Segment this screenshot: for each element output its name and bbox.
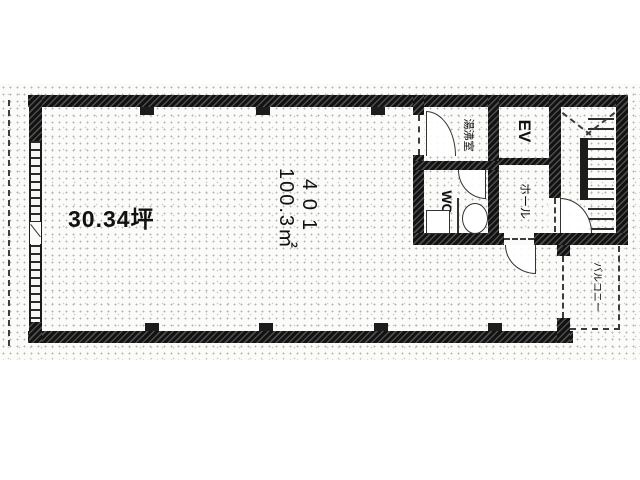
pillar-stub [374,323,388,331]
floor-plan: 湯沸室 WC EV ホール バルコニー 30.34坪 401 100.3㎡ [0,0,640,480]
stair-door-dash [554,198,556,232]
elevator-label: EV [501,113,547,149]
wall-left-top-stub [29,95,42,141]
pillar-stub [140,107,154,115]
unit-number-label: 401 [297,168,320,250]
boundary-chain-line [8,100,10,346]
area-tsubo-label: 30.34坪 [68,200,155,234]
wc-fixture-sink [426,210,450,234]
pillar-stub [488,323,502,331]
kitchenette-label: 湯沸室 [441,119,495,151]
hall-label: ホール [495,185,553,217]
wall-bottom [28,331,573,343]
wall-right-upper [616,95,628,245]
stairs-center-rail [580,138,588,200]
wall-stair-left [549,95,561,198]
wall-kitchenette-wc-divider [413,161,499,170]
wall-ev-front [499,158,549,165]
balcony-label: バルコニー [561,273,631,301]
hall-door-dash [504,238,534,240]
pillar-stub [371,107,385,115]
wall-core-mid [488,95,499,245]
area-sqm-label: 100.3㎡ [274,168,297,250]
wall-left-bottom-stub [29,322,42,343]
pillar-stub [259,323,273,331]
pillar-stub [256,107,270,115]
kitchenette-door-dash [418,115,420,155]
pillar-stub [145,323,159,331]
wc-fixture-toilet [462,203,488,234]
wc-stall-partition [457,198,459,233]
unit-area-label: 401 100.3㎡ [269,149,325,269]
wall-top [28,95,628,107]
